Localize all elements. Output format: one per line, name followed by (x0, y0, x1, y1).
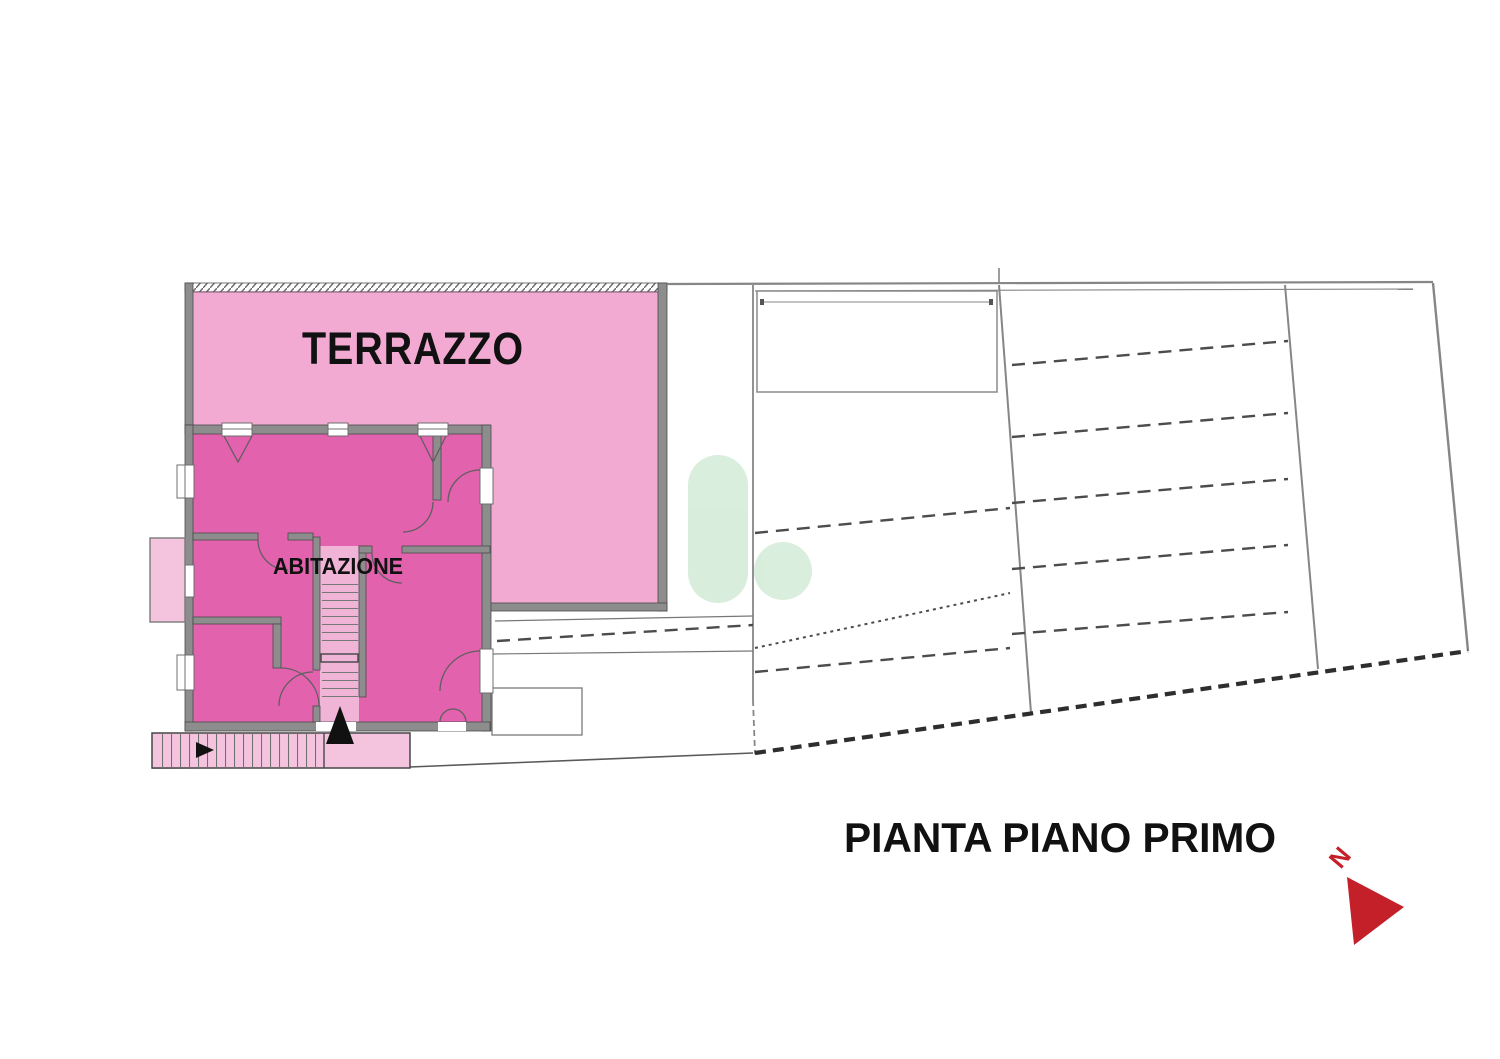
watermark-dot (754, 542, 812, 600)
roof-hatch-line (755, 648, 1010, 672)
watermark-pill (688, 455, 748, 603)
partition-h3 (193, 617, 281, 624)
eave-line-lower (491, 651, 753, 654)
roof-hatch-line (755, 508, 1010, 533)
roof-hatch-line (1012, 341, 1288, 365)
plan-title: PIANTA PIANO PRIMO (844, 814, 1276, 861)
stair-treads-lower (322, 668, 358, 701)
roof-dormer-tick-right (989, 299, 993, 305)
roof-dormer-box (757, 291, 997, 392)
door-east-1 (480, 468, 493, 504)
roof-hatch-line (1012, 612, 1288, 634)
partition-v1 (433, 434, 441, 500)
roof-structure (667, 268, 1468, 754)
roof-left-edge-dashed (753, 700, 755, 754)
door-east-2 (480, 649, 493, 693)
terrace-parapet-bottom (490, 603, 667, 611)
roof-hatch-line (1012, 479, 1288, 503)
floor-plan-page: TERRAZZO ABITAZIONE PIANTA PIANO PRIMO N (0, 0, 1500, 1059)
roof-right-edge (1433, 283, 1468, 651)
door-south-2 (438, 722, 466, 731)
roof-bottom-dashed-edge (755, 651, 1468, 753)
watermark-logo (688, 455, 812, 603)
north-arrow-icon (1347, 877, 1404, 945)
lower-landing-outline (492, 688, 582, 735)
stair-treads-upper (322, 578, 358, 648)
roof-eave-dashed-line (497, 625, 753, 641)
partition-h4a (359, 546, 372, 553)
terrace-parapet-left (185, 283, 193, 429)
roof-dotted-line (755, 593, 1010, 648)
floor-plan-canvas: TERRAZZO ABITAZIONE PIANTA PIANO PRIMO N (0, 0, 1500, 1059)
west-balcony (150, 538, 185, 622)
roof-divider-1 (999, 285, 1031, 713)
partition-v4 (273, 624, 281, 668)
terrace-parapet-right (658, 283, 667, 611)
partition-h4b (402, 546, 490, 553)
external-stair-treads (157, 733, 323, 768)
roof-dormer-tick-left (760, 299, 764, 305)
dwelling-label: ABITAZIONE (273, 553, 403, 579)
terrace-label: TERRAZZO (302, 323, 524, 374)
partition-stair-left-lower (313, 706, 320, 722)
compass-north: N (1324, 842, 1404, 945)
roof-hatch-line (1012, 413, 1288, 437)
terrace-parapet-top (185, 283, 667, 292)
partition-h2a (193, 533, 258, 540)
roof-top-edge (667, 282, 1433, 284)
roof-hatch-line (1012, 545, 1288, 569)
roof-divider-2 (1285, 285, 1318, 669)
partition-h2b (288, 533, 313, 540)
eave-line-upper (495, 616, 753, 621)
north-letter: N (1324, 842, 1357, 874)
